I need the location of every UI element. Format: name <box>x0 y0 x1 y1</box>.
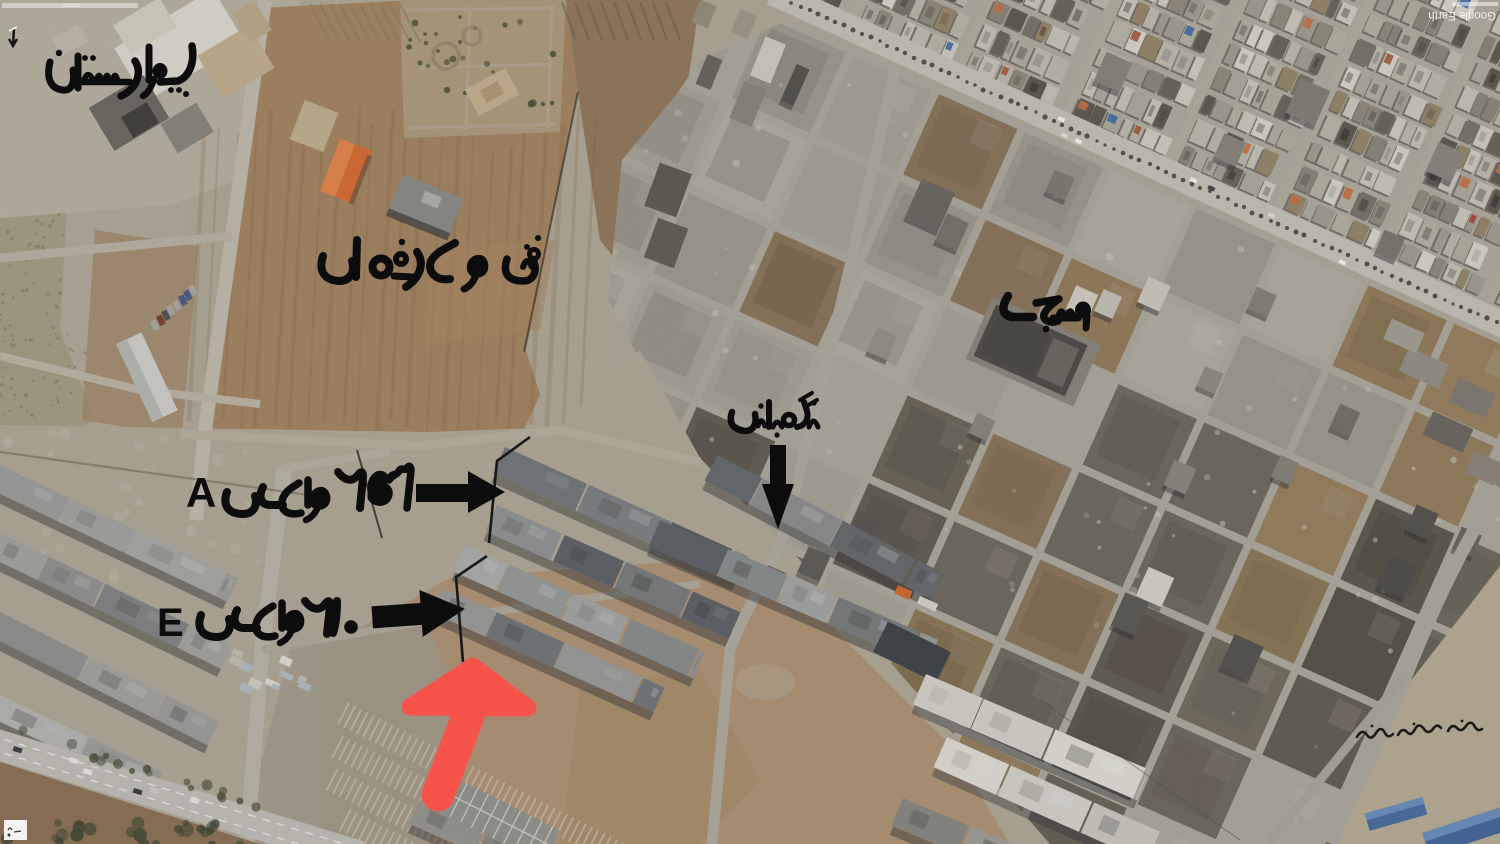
svg-text:A: A <box>186 469 216 516</box>
svg-text:Google Earth: Google Earth <box>1428 9 1496 21</box>
svg-text:E: E <box>157 601 184 645</box>
